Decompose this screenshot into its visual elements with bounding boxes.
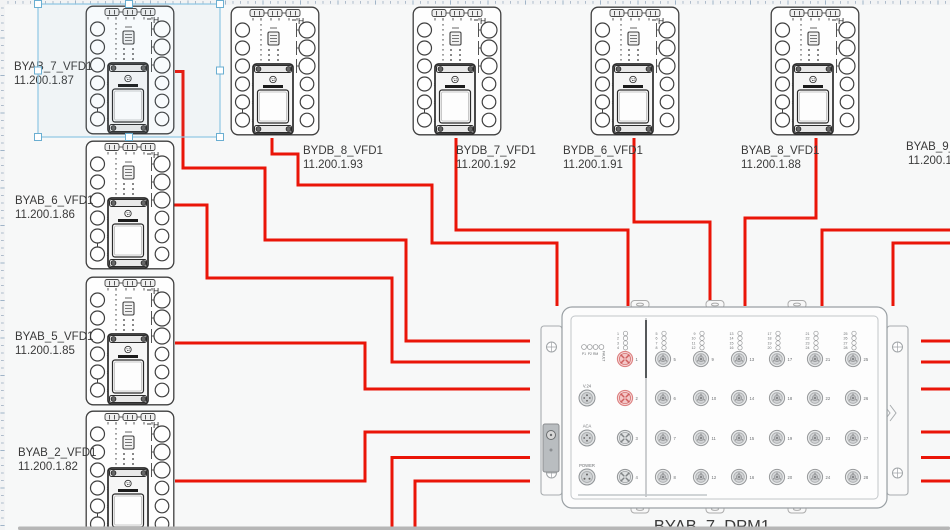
port-number: 13 xyxy=(750,357,755,362)
port-number: 12 xyxy=(712,475,717,480)
wire-bottom-offscreen-2[interactable] xyxy=(415,481,530,530)
port-number: 26 xyxy=(844,337,848,341)
port-number: 24 xyxy=(806,346,810,350)
status-led-label: P1 xyxy=(582,352,586,356)
device-ip: 11.200.1.91 xyxy=(563,159,623,171)
wire-byab5-vfd1[interactable] xyxy=(175,343,530,389)
vfd-graphic xyxy=(86,141,174,269)
port-number: 23 xyxy=(806,341,810,345)
device-node-bydb8-vfd1[interactable]: BYDB_8_VFD1 11.200.1.93 xyxy=(231,7,383,171)
scene-svg: H xyxy=(0,0,950,530)
vfd-graphic xyxy=(413,7,501,135)
power-connector xyxy=(579,469,595,485)
port-number: 13 xyxy=(730,332,734,336)
port-number: 3 xyxy=(617,341,619,345)
vfd-graphic xyxy=(771,7,859,135)
selection-outline[interactable] xyxy=(38,4,220,137)
aca-connector xyxy=(579,430,595,446)
status-led-label: RM xyxy=(593,352,598,356)
device-label: BYAB_5_VFD1 xyxy=(15,331,93,343)
connector-label-power: POWER xyxy=(579,463,595,468)
vfd-graphic xyxy=(86,411,174,530)
device-node-byab6-vfd1[interactable]: BYAB_6_VFD1 11.200.1.86 xyxy=(15,141,174,269)
port-number: 28 xyxy=(844,346,848,350)
device-ip: 11.200.1.85 xyxy=(15,345,75,357)
device-node-byab9-vfd1[interactable]: BYAB_9_ 11.200.1 xyxy=(906,141,950,167)
port-number: 17 xyxy=(768,332,772,336)
port-number: 18 xyxy=(788,396,793,401)
port-number: 22 xyxy=(806,337,810,341)
port-number: 22 xyxy=(826,396,831,401)
port-number: 6 xyxy=(656,337,658,341)
port-number: 24 xyxy=(826,475,831,480)
port-number: 16 xyxy=(730,346,734,350)
selection-box xyxy=(35,1,224,141)
port-number: 20 xyxy=(768,346,772,350)
device-node-byab2-vfd1[interactable]: BYAB_2_VFD1 11.200.1.82 xyxy=(18,411,174,530)
status-led-label: FAULT xyxy=(602,351,606,361)
port-number: 23 xyxy=(826,436,831,441)
port-number: 25 xyxy=(844,332,848,336)
ruler-vertical-ticks xyxy=(0,5,5,530)
vfd-graphic xyxy=(231,7,319,135)
device-label: BYDB_8_VFD1 xyxy=(303,145,383,157)
device-node-byab5-vfd1[interactable]: BYAB_5_VFD1 11.200.1.85 xyxy=(15,277,174,405)
device-ip: 11.200.1.86 xyxy=(15,209,75,221)
port-number: 18 xyxy=(768,337,772,341)
device-ip: 11.200.1 xyxy=(908,155,950,167)
diagram-canvas[interactable]: H xyxy=(0,0,950,530)
device-label: BYDB_7_VFD1 xyxy=(456,145,536,157)
port-number: 16 xyxy=(750,475,755,480)
clamp-screw-center xyxy=(550,434,552,436)
port-number: 27 xyxy=(864,436,869,441)
port-number: 2 xyxy=(617,337,619,341)
port-number: 11 xyxy=(692,341,696,345)
port-number: 21 xyxy=(826,357,831,362)
device-node-byab8-vfd1[interactable]: BYAB_8_VFD1 11.200.1.88 xyxy=(741,7,859,171)
port-number: 10 xyxy=(692,337,696,341)
device-label: BYAB_2_VFD1 xyxy=(18,447,96,459)
device-ip: 11.200.1.82 xyxy=(18,461,78,473)
device-label: BYDB_6_VFD1 xyxy=(563,145,643,157)
status-led-label: P2 xyxy=(588,352,592,356)
port-number: 21 xyxy=(806,332,810,336)
port-number: 11 xyxy=(712,436,717,441)
device-node-bydb7-vfd1[interactable]: BYDB_7_VFD1 11.200.1.92 xyxy=(413,7,536,171)
port-number: 15 xyxy=(750,436,755,441)
port-number: 8 xyxy=(656,346,658,350)
port-number: 20 xyxy=(788,475,793,480)
port-number: 19 xyxy=(768,341,772,345)
horizontal-scrollbar[interactable] xyxy=(18,527,950,530)
v24-connector xyxy=(579,390,595,406)
device-label: BYAB_9_ xyxy=(906,141,950,153)
port-number: 27 xyxy=(844,341,848,345)
port-number: 5 xyxy=(656,332,658,336)
device-node-bydb6-vfd1[interactable]: BYDB_6_VFD1 11.200.1.91 xyxy=(563,7,679,171)
port-number: 9 xyxy=(694,332,696,336)
port-number: 17 xyxy=(788,357,793,362)
wire-bydb6-vfd1[interactable] xyxy=(634,138,710,306)
port-number: 28 xyxy=(864,475,869,480)
device-label: BYAB_8_VFD1 xyxy=(741,145,819,157)
device-ip: 11.200.1.93 xyxy=(303,159,363,171)
connector-label-aca: ACA xyxy=(583,424,592,429)
port-number: 14 xyxy=(750,396,755,401)
device-ip: 11.200.1.88 xyxy=(741,159,801,171)
port-number: 25 xyxy=(864,357,869,362)
port-number: 19 xyxy=(788,436,793,441)
vfd-graphic xyxy=(86,277,174,405)
port-number: 7 xyxy=(656,341,658,345)
port-number: 12 xyxy=(692,346,696,350)
connector-label-v24: V.24 xyxy=(583,384,592,389)
device-label: BYAB_6_VFD1 xyxy=(15,195,93,207)
device-node-byab7-dpm1[interactable]: P1 P2 RM FAULT V.24 ACA POWER 123412345 xyxy=(541,301,908,530)
port-number: 4 xyxy=(617,346,619,350)
vfd-graphic xyxy=(591,7,679,135)
port-number: 14 xyxy=(730,337,734,341)
port-number: 1 xyxy=(617,332,619,336)
device-ip: 11.200.1.92 xyxy=(456,159,516,171)
wire-bottom-offscreen-1[interactable] xyxy=(392,458,530,530)
clamp-dot xyxy=(550,449,553,452)
wire-offscreen-right[interactable] xyxy=(893,243,950,306)
wire-byab9-vfd1[interactable] xyxy=(822,230,950,306)
port-number: 10 xyxy=(712,396,717,401)
port-number: 26 xyxy=(864,396,869,401)
port-number: 15 xyxy=(730,341,734,345)
